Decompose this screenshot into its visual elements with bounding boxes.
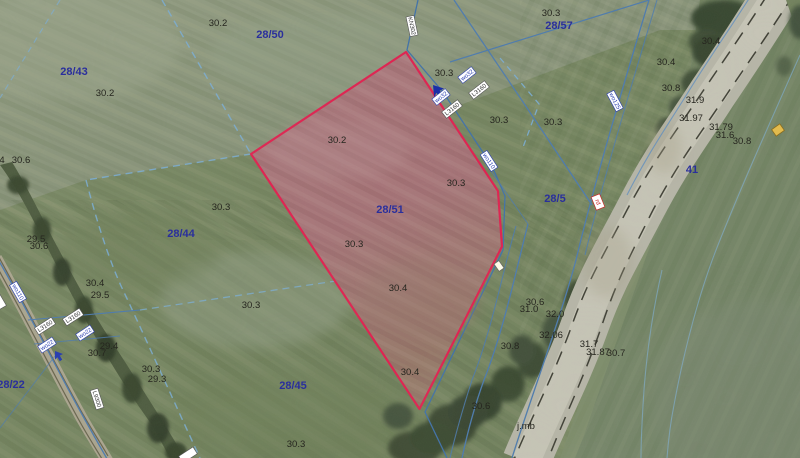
svg-text:30.7: 30.7 [88, 348, 107, 359]
svg-text:28/50: 28/50 [256, 29, 284, 41]
svg-text:31.0: 31.0 [520, 304, 539, 315]
svg-text:30.4: 30.4 [86, 278, 105, 289]
svg-text:41: 41 [686, 164, 698, 176]
svg-text:30.3: 30.3 [345, 239, 364, 250]
svg-text:30.7: 30.7 [607, 348, 626, 359]
svg-text:32.06: 32.06 [539, 330, 563, 341]
svg-text:30.4: 30.4 [389, 283, 408, 294]
svg-text:30.2: 30.2 [96, 88, 115, 99]
svg-text:30.3: 30.3 [212, 202, 231, 213]
svg-text:30.4: 30.4 [401, 367, 420, 378]
svg-text:30.8: 30.8 [733, 136, 752, 147]
svg-text:28/45: 28/45 [279, 380, 307, 392]
svg-text:30.4: 30.4 [657, 57, 676, 68]
svg-text:29.3: 29.3 [148, 374, 167, 385]
svg-text:28/43: 28/43 [60, 66, 88, 78]
svg-text:30.2: 30.2 [328, 135, 347, 146]
svg-text:30.8: 30.8 [501, 341, 520, 352]
svg-text:30.4: 30.4 [702, 36, 721, 47]
svg-text:31.97: 31.97 [679, 113, 703, 124]
svg-text:j.mb: j.mb [516, 421, 535, 432]
svg-text:28/22: 28/22 [0, 379, 25, 391]
svg-text:29.5: 29.5 [91, 290, 110, 301]
svg-text:30.6: 30.6 [30, 241, 49, 252]
svg-text:31.6: 31.6 [716, 130, 735, 141]
svg-text:30.2: 30.2 [209, 18, 228, 29]
svg-text:28/5: 28/5 [544, 193, 565, 205]
svg-text:31.9: 31.9 [686, 95, 705, 106]
svg-text:30.3: 30.3 [287, 439, 306, 450]
svg-text:32.0: 32.0 [546, 309, 565, 320]
svg-text:30.3: 30.3 [544, 117, 563, 128]
svg-text:4: 4 [0, 155, 5, 166]
svg-text:30.3: 30.3 [435, 68, 454, 79]
svg-text:30.6: 30.6 [12, 155, 31, 166]
svg-text:30.3: 30.3 [242, 300, 261, 311]
svg-text:28/57: 28/57 [545, 20, 573, 32]
svg-text:30.6: 30.6 [472, 401, 491, 412]
svg-text:30.3: 30.3 [447, 178, 466, 189]
svg-text:30.8: 30.8 [662, 83, 681, 94]
svg-text:28/44: 28/44 [167, 228, 195, 240]
svg-text:30.3: 30.3 [542, 8, 561, 19]
svg-text:30.3: 30.3 [490, 115, 509, 126]
svg-text:28/51: 28/51 [376, 204, 404, 216]
